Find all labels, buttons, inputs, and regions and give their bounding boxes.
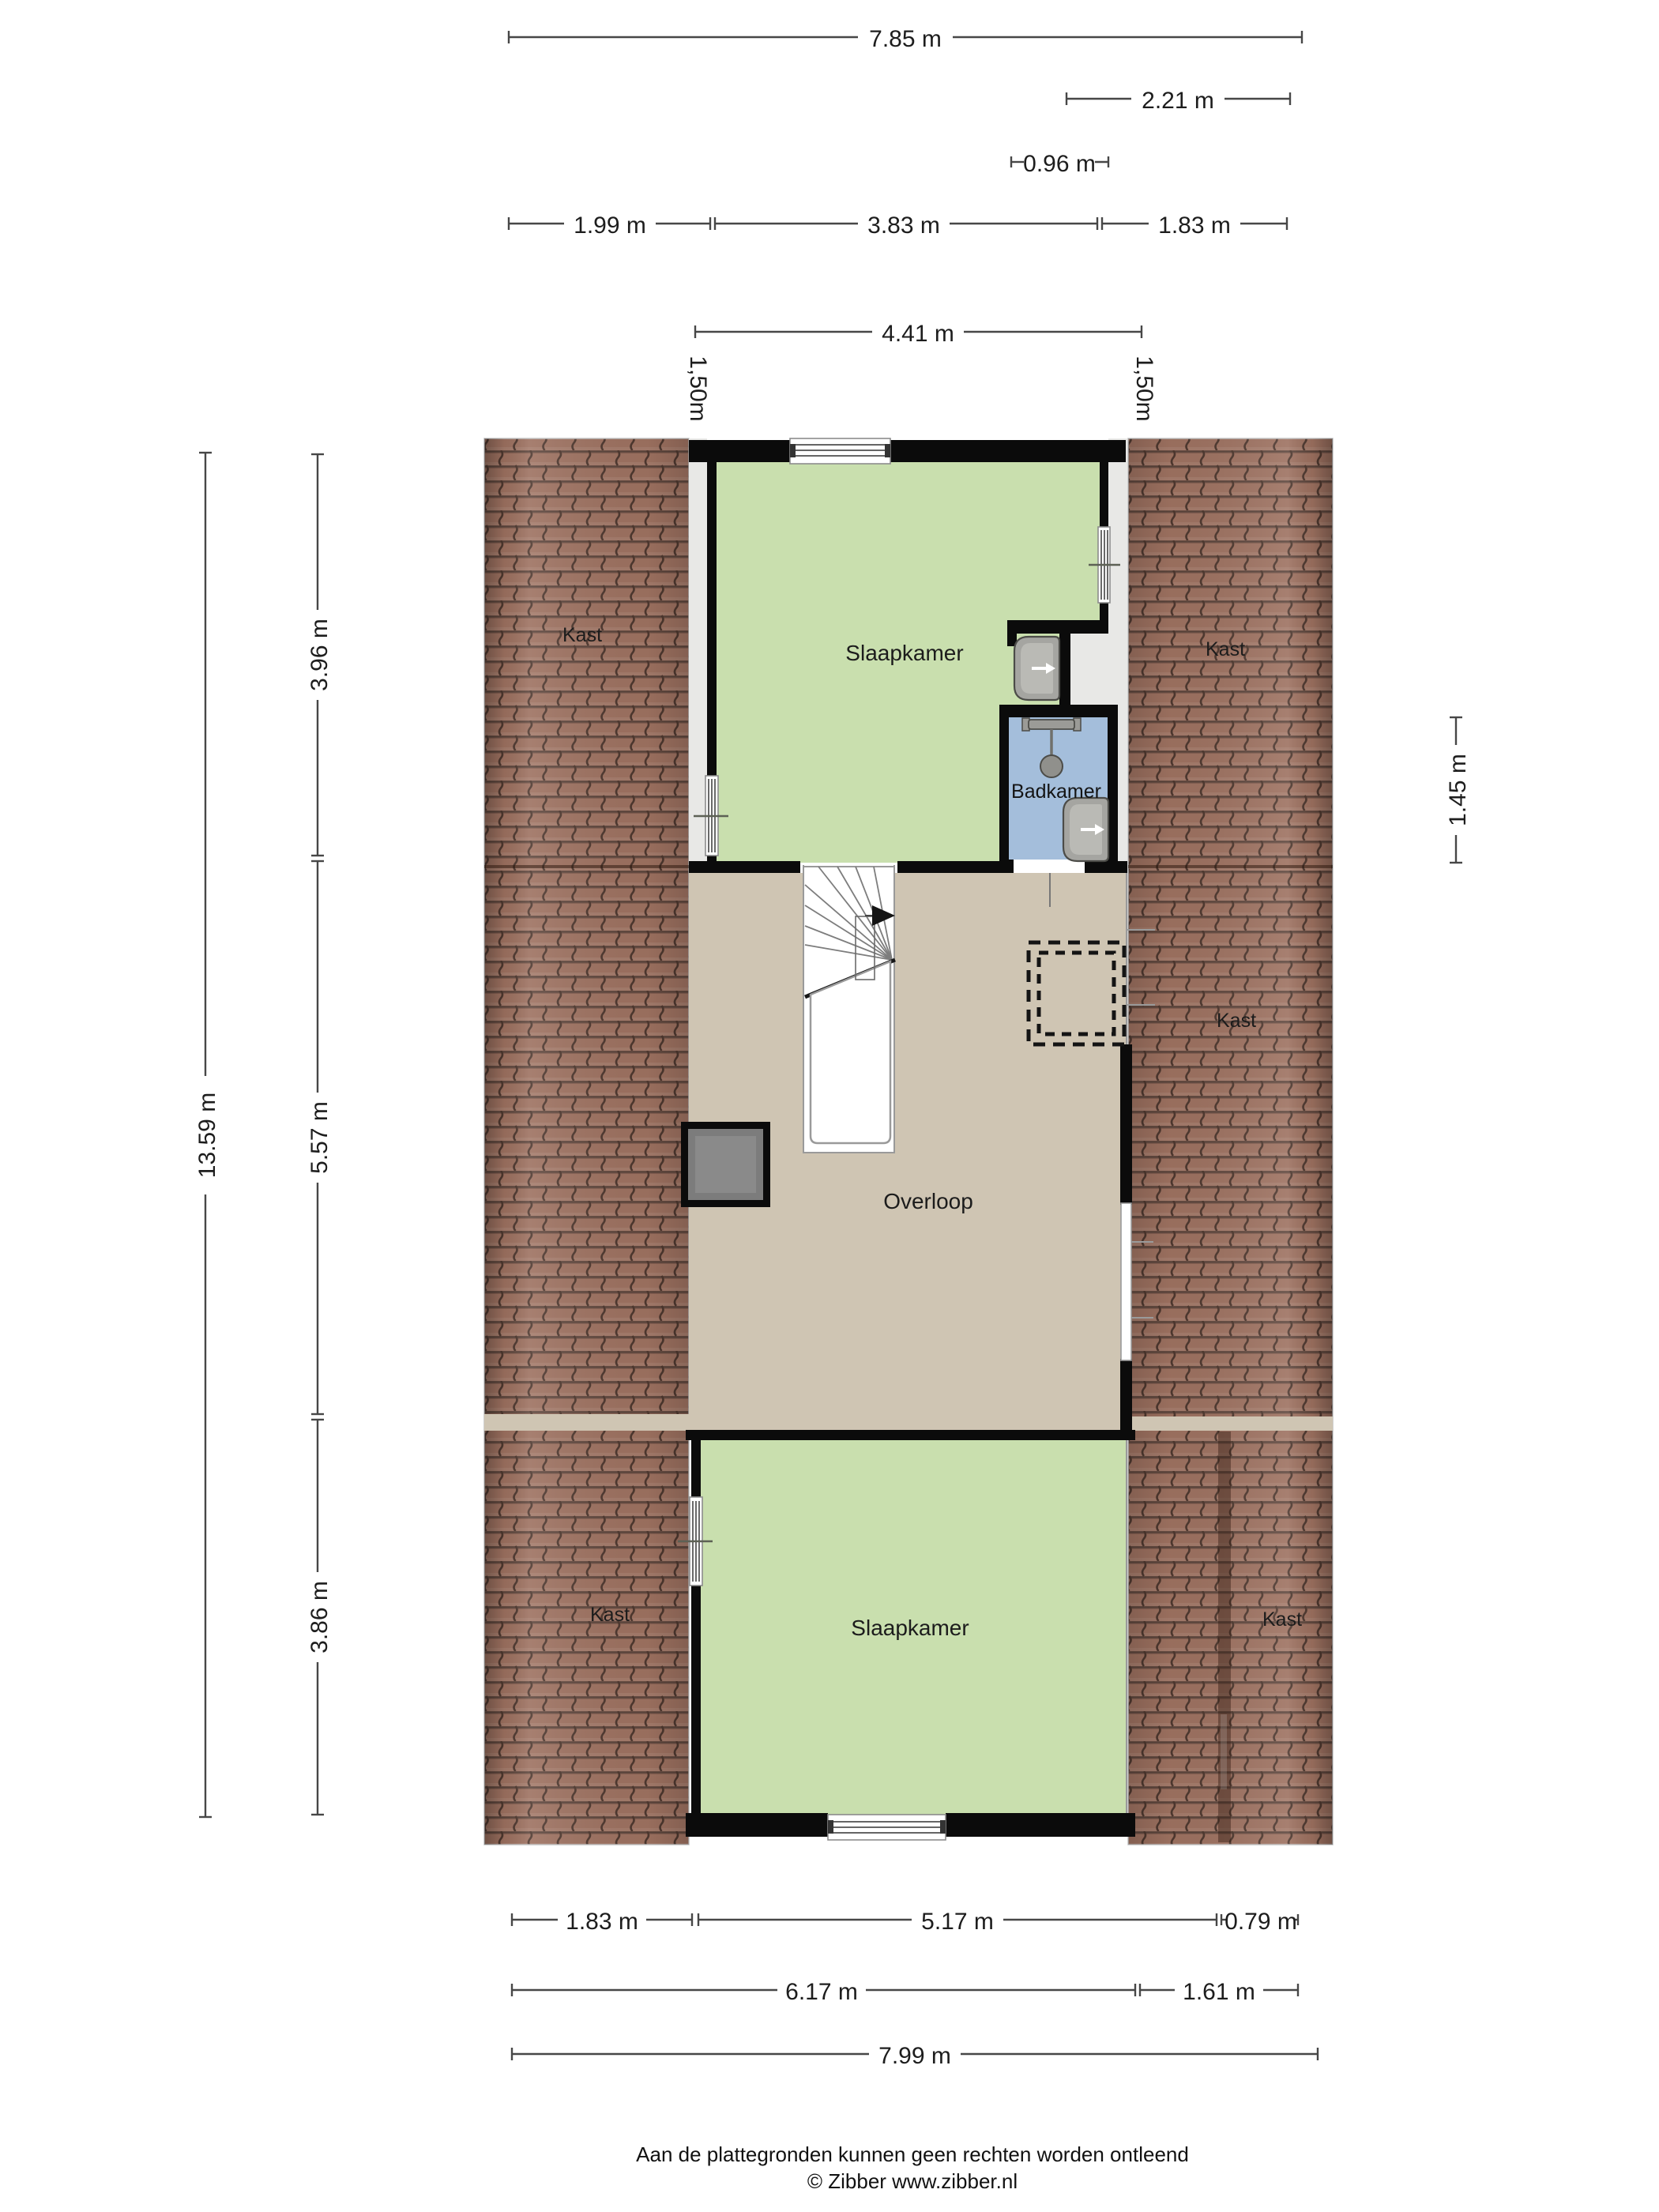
floor-strip-left: [689, 438, 707, 863]
label-slaapkamer-bottom: Slaapkamer: [851, 1616, 969, 1640]
dim-knee-left: 1,50m: [685, 355, 711, 421]
svg-text:2.21 m: 2.21 m: [1142, 88, 1214, 114]
svg-text:5.17 m: 5.17 m: [921, 1909, 994, 1935]
svg-text:1.83 m: 1.83 m: [566, 1909, 638, 1935]
dim-top-interior-width: 4.41 m: [695, 317, 1142, 347]
dim-bottom-middle-segment: 5.17 m: [698, 1905, 1217, 1935]
footer-credit: © Zibber www.zibber.nl: [807, 2169, 1018, 2193]
floor-sliver-left: [484, 1414, 689, 1431]
svg-text:6.17 m: 6.17 m: [785, 1979, 858, 2005]
svg-text:3.86 m: 3.86 m: [307, 1581, 333, 1653]
floorplan-page: Slaapkamer Badkamer Overloop Slaapkamer …: [0, 0, 1659, 2212]
dim-bottom-left-segment: 1.83 m: [512, 1905, 692, 1935]
dim-bottom-width-main: 6.17 m: [512, 1975, 1135, 2005]
svg-text:0.96 m: 0.96 m: [1023, 151, 1096, 177]
svg-text:1.99 m: 1.99 m: [574, 213, 646, 239]
roof-left-strip: [484, 438, 689, 1845]
svg-text:1.45 m: 1.45 m: [1445, 754, 1471, 826]
svg-text:13.59 m: 13.59 m: [194, 1093, 220, 1178]
dim-bottom-width-total: 7.99 m: [512, 2039, 1318, 2069]
toilet-icon-top: [1014, 637, 1059, 700]
svg-text:1,50m: 1,50m: [685, 355, 711, 421]
dim-left-bottom-section: 3.86 m: [303, 1420, 333, 1815]
chimney-icon: [681, 1122, 770, 1207]
dim-left-top-section: 3.96 m: [303, 454, 333, 856]
label-kast-bottom-left: Kast: [590, 1604, 630, 1626]
label-kast-middle-right: Kast: [1217, 1010, 1256, 1032]
svg-text:3.83 m: 3.83 m: [867, 213, 940, 239]
window-icon-bottom: [828, 1815, 946, 1840]
svg-text:7.85 m: 7.85 m: [869, 26, 942, 52]
kast-door-opening: [1121, 1203, 1131, 1360]
floorplan-canvas: Slaapkamer Badkamer Overloop Slaapkamer …: [0, 0, 1659, 2212]
dim-bottom-width-right: 1.61 m: [1140, 1975, 1298, 2005]
svg-text:7.99 m: 7.99 m: [878, 2043, 951, 2069]
svg-text:1.61 m: 1.61 m: [1183, 1979, 1255, 2005]
svg-text:3.96 m: 3.96 m: [307, 619, 333, 691]
floor-sliver-right: [1132, 1416, 1333, 1431]
label-badkamer: Badkamer: [1011, 781, 1101, 803]
dim-left-total-height: 13.59 m: [190, 453, 220, 1817]
dim-top-middle-segment: 3.83 m: [715, 209, 1097, 239]
label-kast-top-right: Kast: [1206, 638, 1245, 660]
staircase-icon: [803, 865, 895, 1153]
svg-text:4.41 m: 4.41 m: [882, 321, 954, 347]
toilet-icon-bathroom: [1063, 798, 1108, 861]
dim-top-width-right: 2.21 m: [1066, 84, 1290, 114]
label-kast-bottom-right: Kast: [1262, 1608, 1302, 1631]
dim-top-left-segment: 1.99 m: [509, 209, 710, 239]
label-kast-top-left: Kast: [562, 624, 602, 646]
svg-text:1,50m: 1,50m: [1131, 355, 1157, 421]
label-slaapkamer-top: Slaapkamer: [845, 641, 963, 665]
dim-top-width-total: 7.85 m: [509, 22, 1302, 52]
svg-text:5.57 m: 5.57 m: [307, 1101, 333, 1174]
dim-left-middle-section: 5.57 m: [303, 861, 333, 1414]
svg-text:1.83 m: 1.83 m: [1158, 213, 1231, 239]
dim-right-bathroom-height: 1.45 m: [1441, 717, 1471, 863]
dim-knee-right: 1,50m: [1131, 355, 1157, 421]
footer-disclaimer: Aan de plattegronden kunnen geen rechten…: [636, 2142, 1189, 2166]
dim-top-right-segment: 1.83 m: [1102, 209, 1287, 239]
dim-top-width-bathroom: 0.96 m: [1011, 151, 1108, 177]
label-overloop: Overloop: [883, 1189, 973, 1213]
svg-text:0.79 m: 0.79 m: [1224, 1909, 1297, 1935]
window-icon-top: [790, 438, 890, 464]
dim-bottom-right-segment: 0.79 m: [1221, 1909, 1298, 1935]
